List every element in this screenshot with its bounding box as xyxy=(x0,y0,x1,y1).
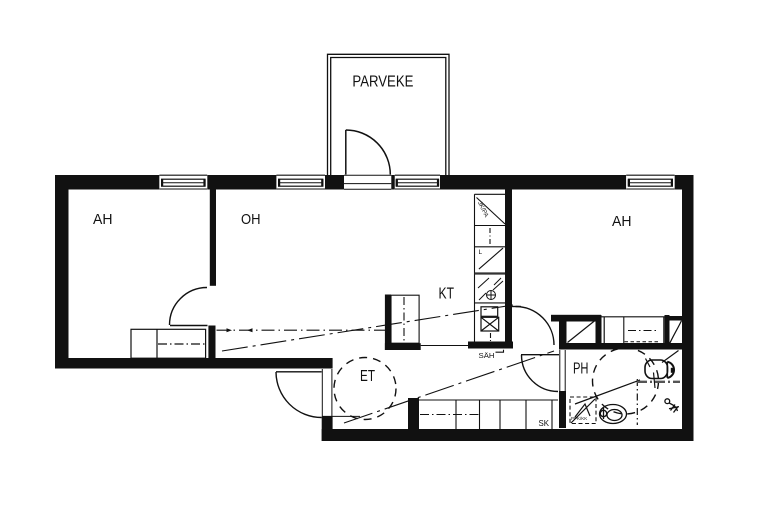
svg-text:SK: SK xyxy=(539,418,550,428)
svg-text:SÄH: SÄH xyxy=(479,351,495,360)
svg-text:AH: AH xyxy=(93,211,113,228)
svg-text:ET: ET xyxy=(360,368,375,385)
svg-text:PPK/KK: PPK/KK xyxy=(571,416,587,421)
svg-text:PARVEKE: PARVEKE xyxy=(352,74,413,91)
svg-text:L: L xyxy=(479,249,483,256)
svg-text:PH: PH xyxy=(573,360,589,377)
svg-text:AH: AH xyxy=(612,213,632,230)
svg-text:KT: KT xyxy=(439,285,455,302)
svg-text:OH: OH xyxy=(241,211,261,228)
